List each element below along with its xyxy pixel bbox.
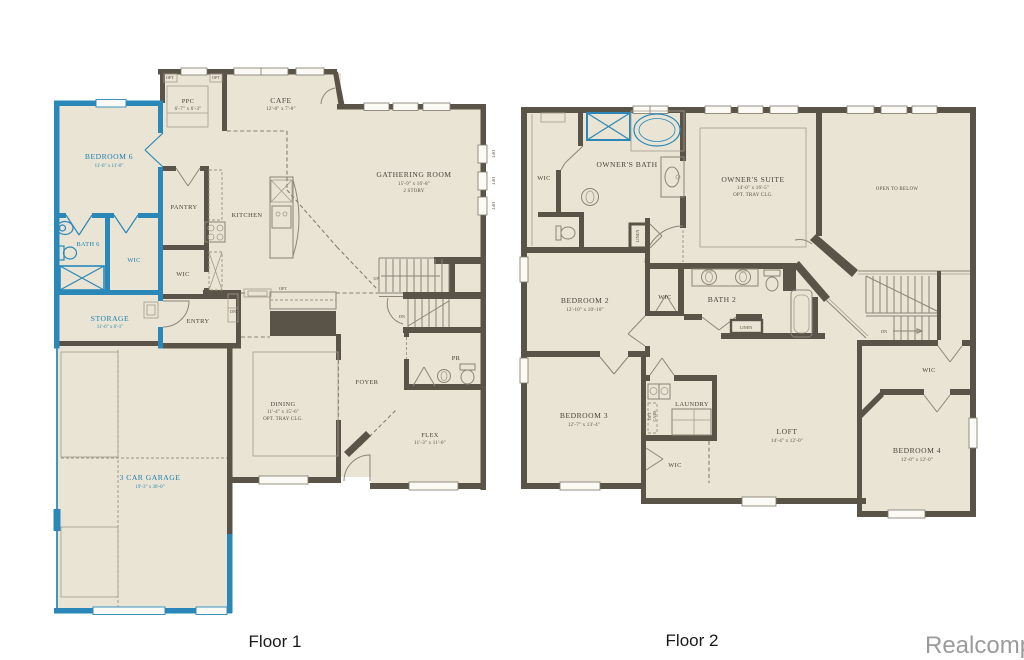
svg-text:BEDROOM 2: BEDROOM 2 xyxy=(561,296,609,305)
svg-text:PPC: PPC xyxy=(182,98,195,105)
svg-text:OPT. TRAY CLG.: OPT. TRAY CLG. xyxy=(263,417,303,422)
svg-text:LINEN: LINEN xyxy=(740,325,753,330)
svg-text:OPT. TRAY CLG.: OPT. TRAY CLG. xyxy=(733,193,773,198)
svg-text:Floor 1: Floor 1 xyxy=(249,632,302,651)
svg-text:LOFT: LOFT xyxy=(777,427,798,436)
svg-text:WIC: WIC xyxy=(176,271,190,278)
svg-text:11'-4" x 15'-6": 11'-4" x 15'-6" xyxy=(267,410,299,415)
svg-text:LINEN: LINEN xyxy=(635,230,640,243)
svg-text:BEDROOM 3: BEDROOM 3 xyxy=(560,411,608,420)
svg-text:OPT: OPT xyxy=(491,202,496,210)
svg-text:WIC: WIC xyxy=(922,367,936,374)
svg-text:12'-7" x 13'-4": 12'-7" x 13'-4" xyxy=(568,423,600,428)
svg-text:11'-6" x 11'-0": 11'-6" x 11'-0" xyxy=(95,164,124,169)
svg-text:ENTRY: ENTRY xyxy=(187,318,210,325)
svg-text:PR: PR xyxy=(452,355,461,362)
svg-text:11'-3" x 11'-0": 11'-3" x 11'-0" xyxy=(414,441,446,446)
svg-text:BATH 2: BATH 2 xyxy=(708,295,737,304)
svg-text:DN: DN xyxy=(230,309,236,314)
svg-text:OWNER'S SUITE: OWNER'S SUITE xyxy=(721,175,784,184)
svg-text:12'-0" x 12'-0": 12'-0" x 12'-0" xyxy=(901,458,933,463)
svg-text:FLEX: FLEX xyxy=(421,432,439,439)
svg-text:STORAGE: STORAGE xyxy=(91,314,129,323)
svg-text:WIC: WIC xyxy=(127,257,140,264)
svg-text:DN: DN xyxy=(399,314,405,319)
svg-text:6'-7" x 6'-3": 6'-7" x 6'-3" xyxy=(175,107,202,112)
svg-text:OPT: OPT xyxy=(166,75,174,80)
svg-text:OWNER'S BATH: OWNER'S BATH xyxy=(596,160,657,169)
svg-text:LAUNDRY: LAUNDRY xyxy=(675,401,709,408)
svg-text:14'-4" x 12'-0": 14'-4" x 12'-0" xyxy=(771,439,803,444)
svg-text:BEDROOM 6: BEDROOM 6 xyxy=(85,152,133,161)
svg-text:WIC: WIC xyxy=(658,294,672,301)
svg-text:UP: UP xyxy=(373,276,379,281)
svg-text:OPEN TO BELOW: OPEN TO BELOW xyxy=(876,187,918,192)
svg-text:19'-3" x 30'-0": 19'-3" x 30'-0" xyxy=(135,485,164,490)
svg-text:DINING: DINING xyxy=(270,401,295,408)
svg-text:PANTRY: PANTRY xyxy=(170,204,197,211)
svg-text:BEDROOM 4: BEDROOM 4 xyxy=(893,446,941,455)
svg-text:15'-9" x 16'-8": 15'-9" x 16'-8" xyxy=(398,182,430,187)
svg-text:OPT: OPT xyxy=(491,177,496,185)
svg-text:12'-0" x 7'-0": 12'-0" x 7'-0" xyxy=(266,107,296,112)
svg-text:3 CAR GARAGE: 3 CAR GARAGE xyxy=(120,473,181,482)
svg-text:OPT: OPT xyxy=(212,75,220,80)
svg-text:CABS: CABS xyxy=(652,410,657,422)
svg-text:14'-0" x 16'-5": 14'-0" x 16'-5" xyxy=(737,186,769,191)
svg-text:Realcomp: Realcomp xyxy=(925,632,1024,659)
svg-text:KITCHEN: KITCHEN xyxy=(232,212,263,219)
svg-text:OPT: OPT xyxy=(491,150,496,158)
svg-text:12'-10" x 10'-10": 12'-10" x 10'-10" xyxy=(566,308,604,313)
svg-text:GATHERING ROOM: GATHERING ROOM xyxy=(376,170,451,179)
svg-text:Floor 2: Floor 2 xyxy=(666,631,719,650)
svg-text:FOYER: FOYER xyxy=(356,379,379,386)
svg-text:DN: DN xyxy=(881,329,887,334)
svg-text:BATH 6: BATH 6 xyxy=(76,241,99,248)
svg-text:11'-6" x 6'-1": 11'-6" x 6'-1" xyxy=(97,325,124,330)
svg-text:2 STORY: 2 STORY xyxy=(403,189,424,194)
svg-text:OPT: OPT xyxy=(279,286,287,291)
svg-text:CAFE: CAFE xyxy=(270,96,291,105)
svg-text:WIC: WIC xyxy=(537,175,551,182)
svg-text:WIC: WIC xyxy=(668,462,682,469)
